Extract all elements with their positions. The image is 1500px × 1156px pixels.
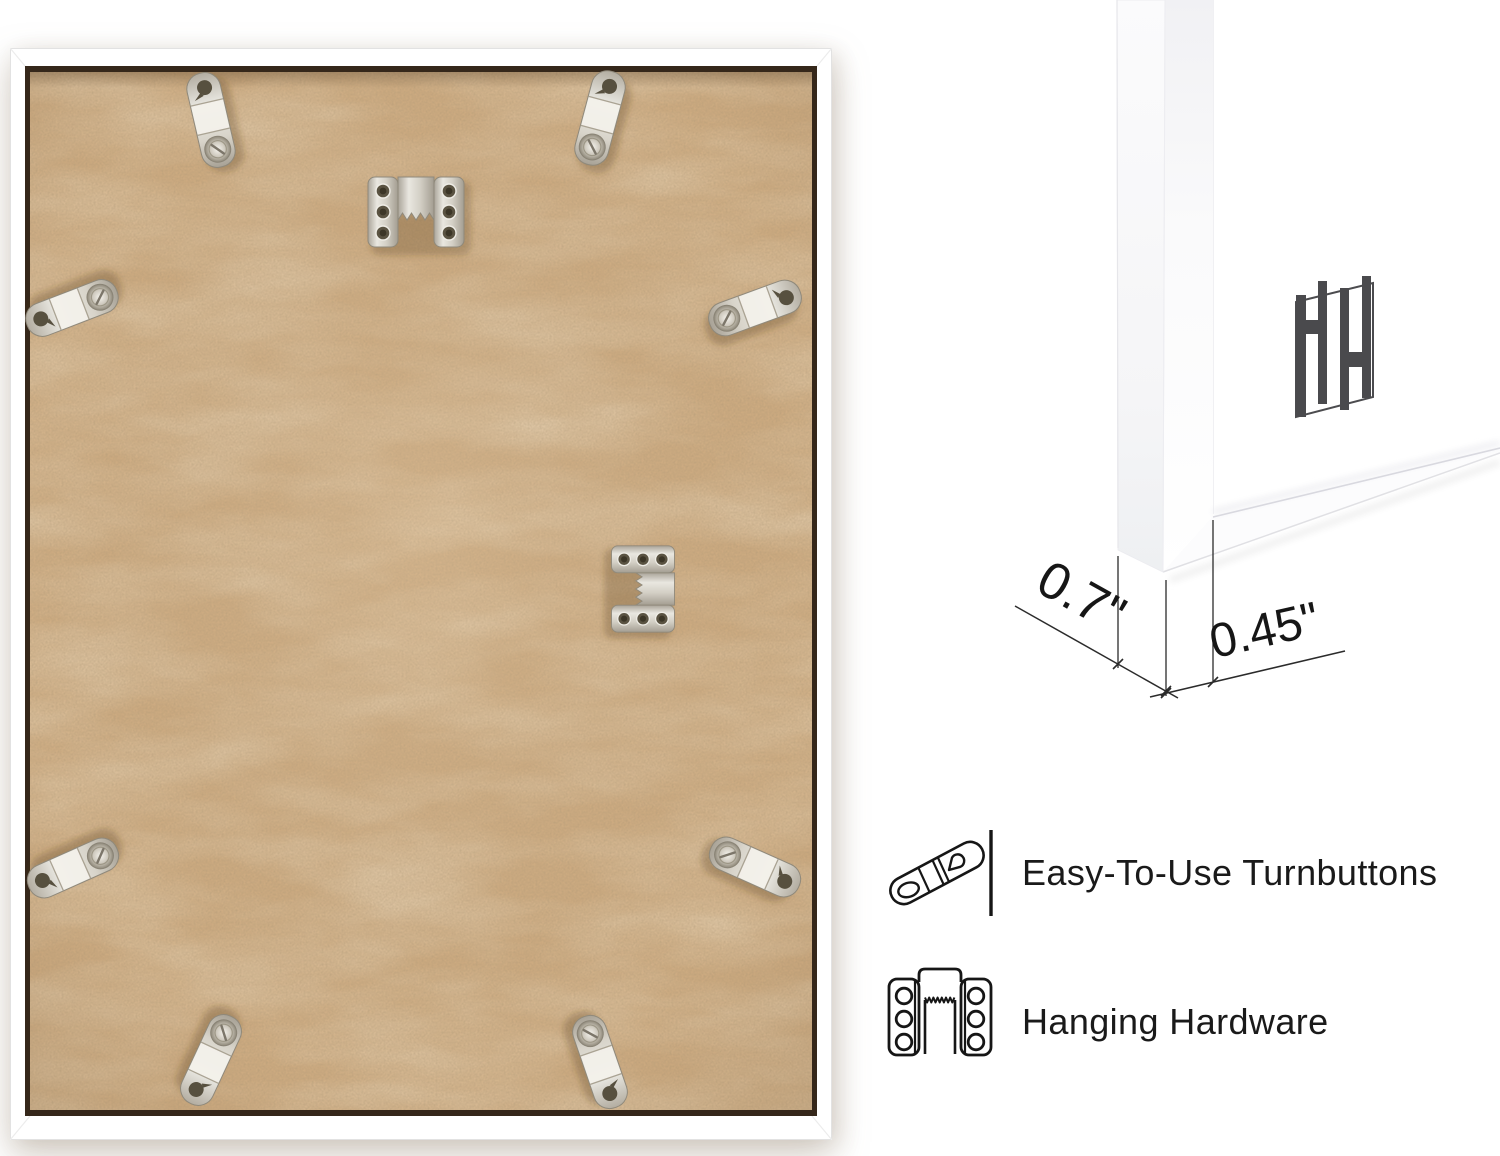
- logo-h1-crossbar: [1296, 320, 1327, 334]
- frame-back-photo: [10, 48, 832, 1140]
- feature-label-hanging-hardware: Hanging Hardware: [1022, 1000, 1329, 1044]
- sawtooth-hanger-middle: [604, 546, 674, 639]
- turnbutton-icon: [886, 826, 1002, 922]
- frame-side-face: [1117, 0, 1165, 572]
- logo-h2-crossbar: [1340, 352, 1371, 367]
- face-dimension-label: 0.45": [1205, 593, 1325, 669]
- glass-reflection-line: [1213, 448, 1500, 517]
- sawtooth-hanger-top: [368, 177, 471, 255]
- logo-outline: [1296, 283, 1373, 417]
- frame-front-face: [1163, 0, 1213, 572]
- frame-corner-photo: 0.7" 0.45": [1000, 0, 1500, 710]
- feature-label-turnbuttons: Easy-To-Use Turnbuttons: [1022, 851, 1437, 895]
- brand-monogram-logo: [1296, 276, 1373, 417]
- product-infographic: 0.7" 0.45" Easy-To-Use Turnbuttons Hangi…: [0, 0, 1500, 1156]
- depth-dimension-label: 0.7": [1027, 550, 1134, 645]
- sawtooth-hanger-icon: [884, 966, 996, 1066]
